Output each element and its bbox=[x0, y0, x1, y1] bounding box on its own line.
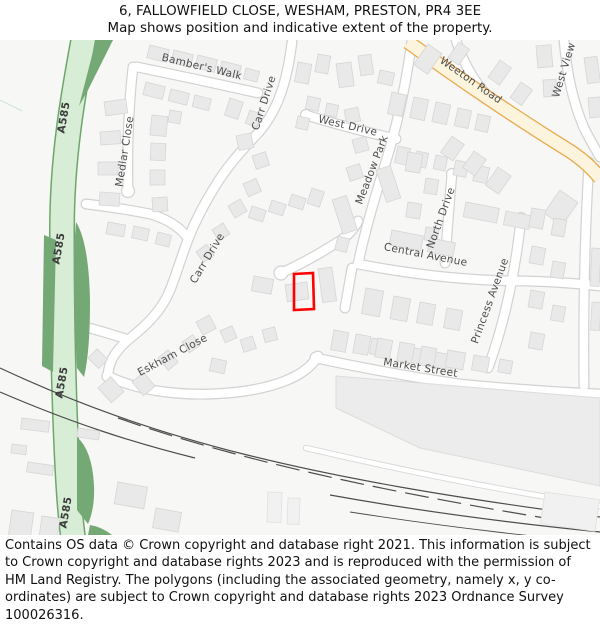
page: 6, FALLOWFIELD CLOSE, WESHAM, PRESTON, P… bbox=[0, 0, 600, 625]
map: Bamber's Walk Carr Drive Medlar Close We… bbox=[0, 40, 600, 535]
map-svg: Bamber's Walk Carr Drive Medlar Close We… bbox=[0, 40, 600, 535]
map-header: 6, FALLOWFIELD CLOSE, WESHAM, PRESTON, P… bbox=[0, 0, 600, 40]
page-title: 6, FALLOWFIELD CLOSE, WESHAM, PRESTON, P… bbox=[0, 3, 600, 20]
page-subtitle: Map shows position and indicative extent… bbox=[0, 20, 600, 37]
attribution-text: Contains OS data © Crown copyright and d… bbox=[0, 535, 600, 625]
